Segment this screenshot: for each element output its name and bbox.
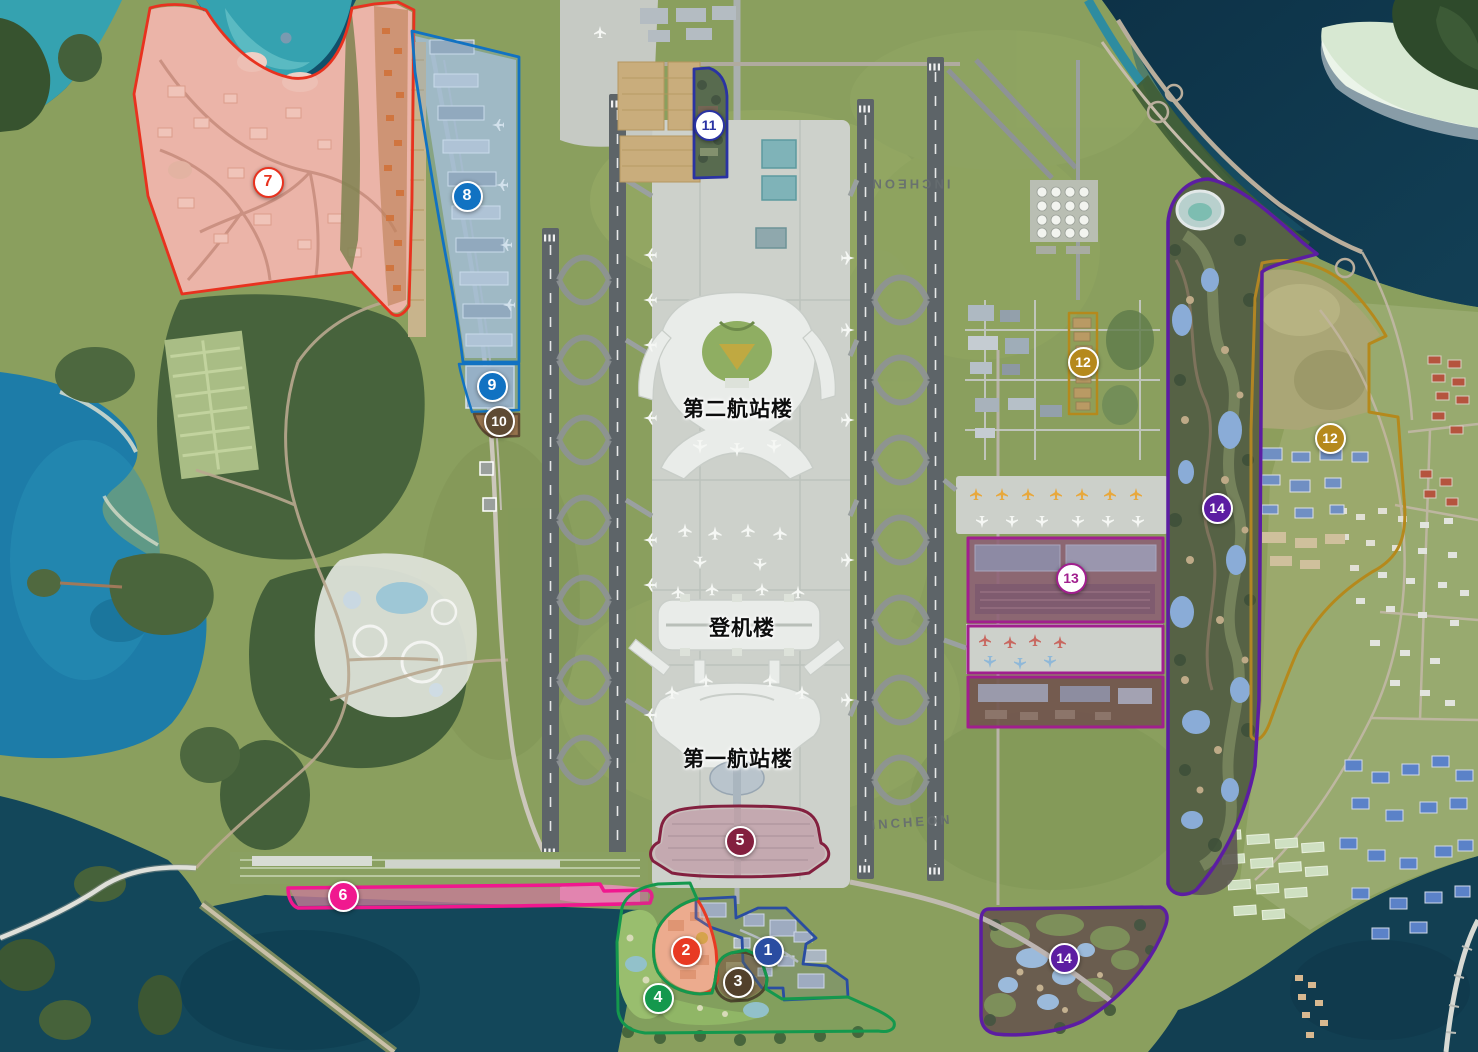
zone-outline-12a — [1069, 313, 1097, 414]
map-artwork — [0, 0, 1478, 1052]
zone-outline-5 — [651, 806, 829, 877]
airport-map: 12345678910111212131414 第二航站楼登机楼第一航站楼INC… — [0, 0, 1478, 1052]
theme-park — [315, 553, 477, 717]
concourse-building — [658, 594, 820, 656]
zone-outline-13a — [968, 538, 1163, 622]
zone-outline-11 — [694, 68, 727, 178]
zone-outline-6 — [288, 884, 652, 908]
zone-outline-13c — [968, 677, 1163, 727]
